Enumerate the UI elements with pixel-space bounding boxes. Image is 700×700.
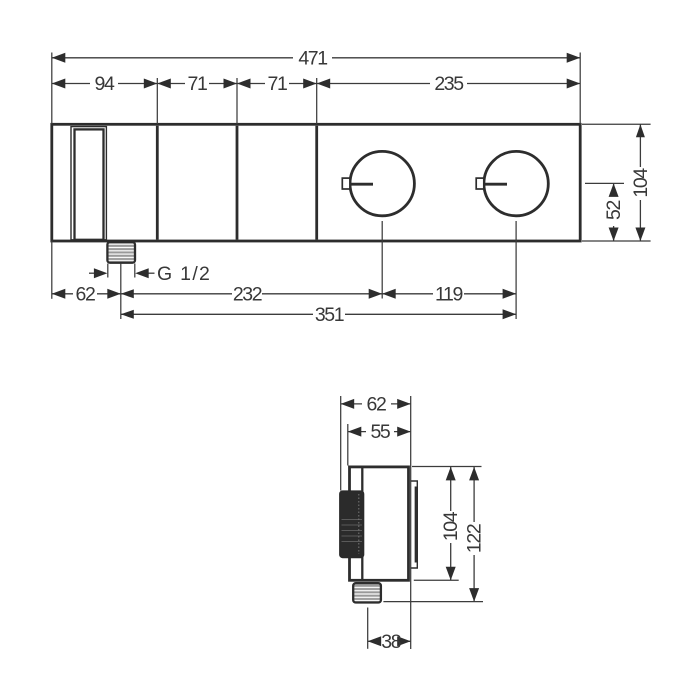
svg-text:122: 122 xyxy=(464,524,486,553)
svg-text:104: 104 xyxy=(630,168,652,198)
svg-text:235: 235 xyxy=(434,73,464,95)
svg-text:62: 62 xyxy=(367,393,386,415)
svg-text:119: 119 xyxy=(435,283,462,305)
svg-text:351: 351 xyxy=(315,304,344,326)
svg-text:62: 62 xyxy=(76,283,95,305)
svg-text:104: 104 xyxy=(440,511,462,541)
svg-text:G 1/2: G 1/2 xyxy=(157,263,211,285)
svg-text:52: 52 xyxy=(603,201,625,220)
svg-text:55: 55 xyxy=(370,421,390,443)
svg-text:38: 38 xyxy=(381,631,400,653)
svg-text:71: 71 xyxy=(188,73,207,95)
svg-text:471: 471 xyxy=(298,47,327,69)
svg-text:94: 94 xyxy=(95,73,115,95)
svg-text:232: 232 xyxy=(233,283,262,305)
svg-text:71: 71 xyxy=(268,73,287,95)
